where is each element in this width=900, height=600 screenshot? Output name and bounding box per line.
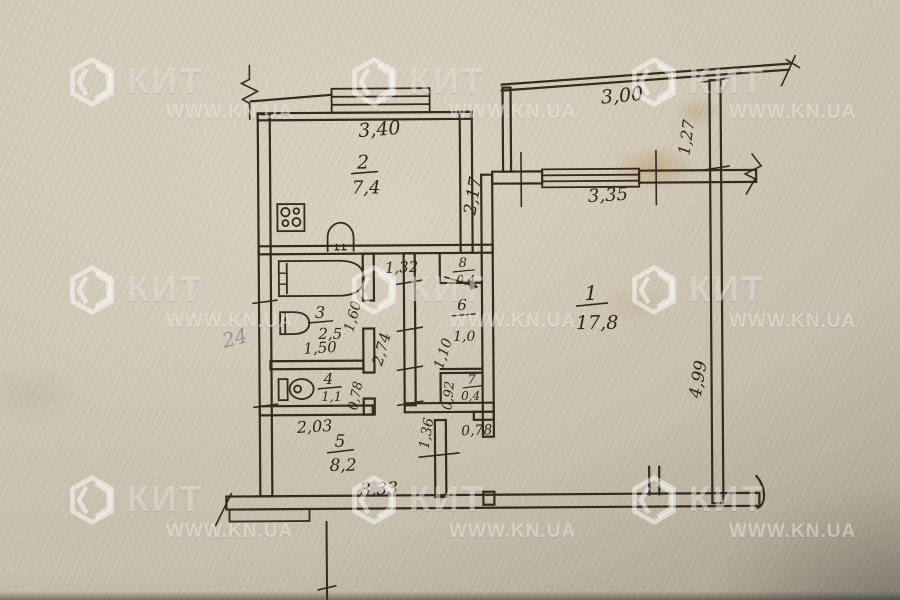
dim-hall-bottom: 3,33 — [360, 479, 399, 501]
dim-corridor-length: 2,74 — [368, 331, 395, 369]
dim-room1-window: 3,35 — [587, 184, 628, 207]
kitchen-sink-icon — [327, 223, 353, 252]
room3-number: 3 — [315, 303, 325, 322]
room2-area: 7,4 — [352, 177, 381, 198]
room5-number: 5 — [335, 432, 346, 452]
room1-area: 17,8 — [576, 312, 618, 334]
dim-bath-width: 1,50 — [303, 338, 338, 358]
room6-number: 6 — [457, 296, 467, 314]
dim-door-width: 0,78 — [461, 422, 493, 439]
room8-area: 0,4 — [456, 273, 475, 287]
room8-number: 8 — [459, 256, 467, 271]
floorplan-drawing: 1 17,8 2 7,4 3 2,5 4 1,1 5 8,2 6 1,0 7 0… — [0, 0, 900, 600]
break-mark-left — [241, 65, 257, 119]
dim-corridor-top: 1,32 — [385, 258, 419, 277]
bathtub-icon — [279, 261, 364, 297]
dim-balcony-width: 3,00 — [600, 83, 644, 109]
room5-area: 8,2 — [330, 456, 357, 476]
room1-number: 1 — [585, 281, 598, 305]
dim-hall-width: 2,03 — [295, 416, 333, 437]
break-mark-right — [745, 154, 761, 194]
room4-number: 4 — [323, 370, 334, 388]
floorplan-photo: 1 17,8 2 7,4 3 2,5 4 1,1 5 8,2 6 1,0 7 0… — [0, 0, 900, 600]
room7-area: 0,4 — [461, 389, 480, 403]
dim-room1-depth: 4,99 — [685, 359, 711, 401]
kitchen-window — [332, 88, 430, 113]
room6-area: 1,0 — [453, 329, 475, 345]
room4-area: 1,1 — [321, 390, 342, 405]
room2-number: 2 — [356, 152, 369, 174]
dim-balcony-depth: 1,27 — [674, 118, 698, 157]
room7-number: 7 — [467, 373, 476, 388]
dim-bath-depth: 1,60 — [341, 299, 365, 333]
dim-closet6-depth: 1,10 — [431, 336, 456, 371]
washbasin-icon — [280, 312, 309, 334]
walls — [223, 64, 793, 600]
toilet-icon — [279, 379, 314, 400]
dimension-ticks — [212, 56, 803, 591]
dim-closet7-depth: 0,92 — [440, 381, 458, 411]
stove-icon — [277, 204, 304, 231]
dim-kitchen-width: 3,40 — [357, 117, 401, 142]
